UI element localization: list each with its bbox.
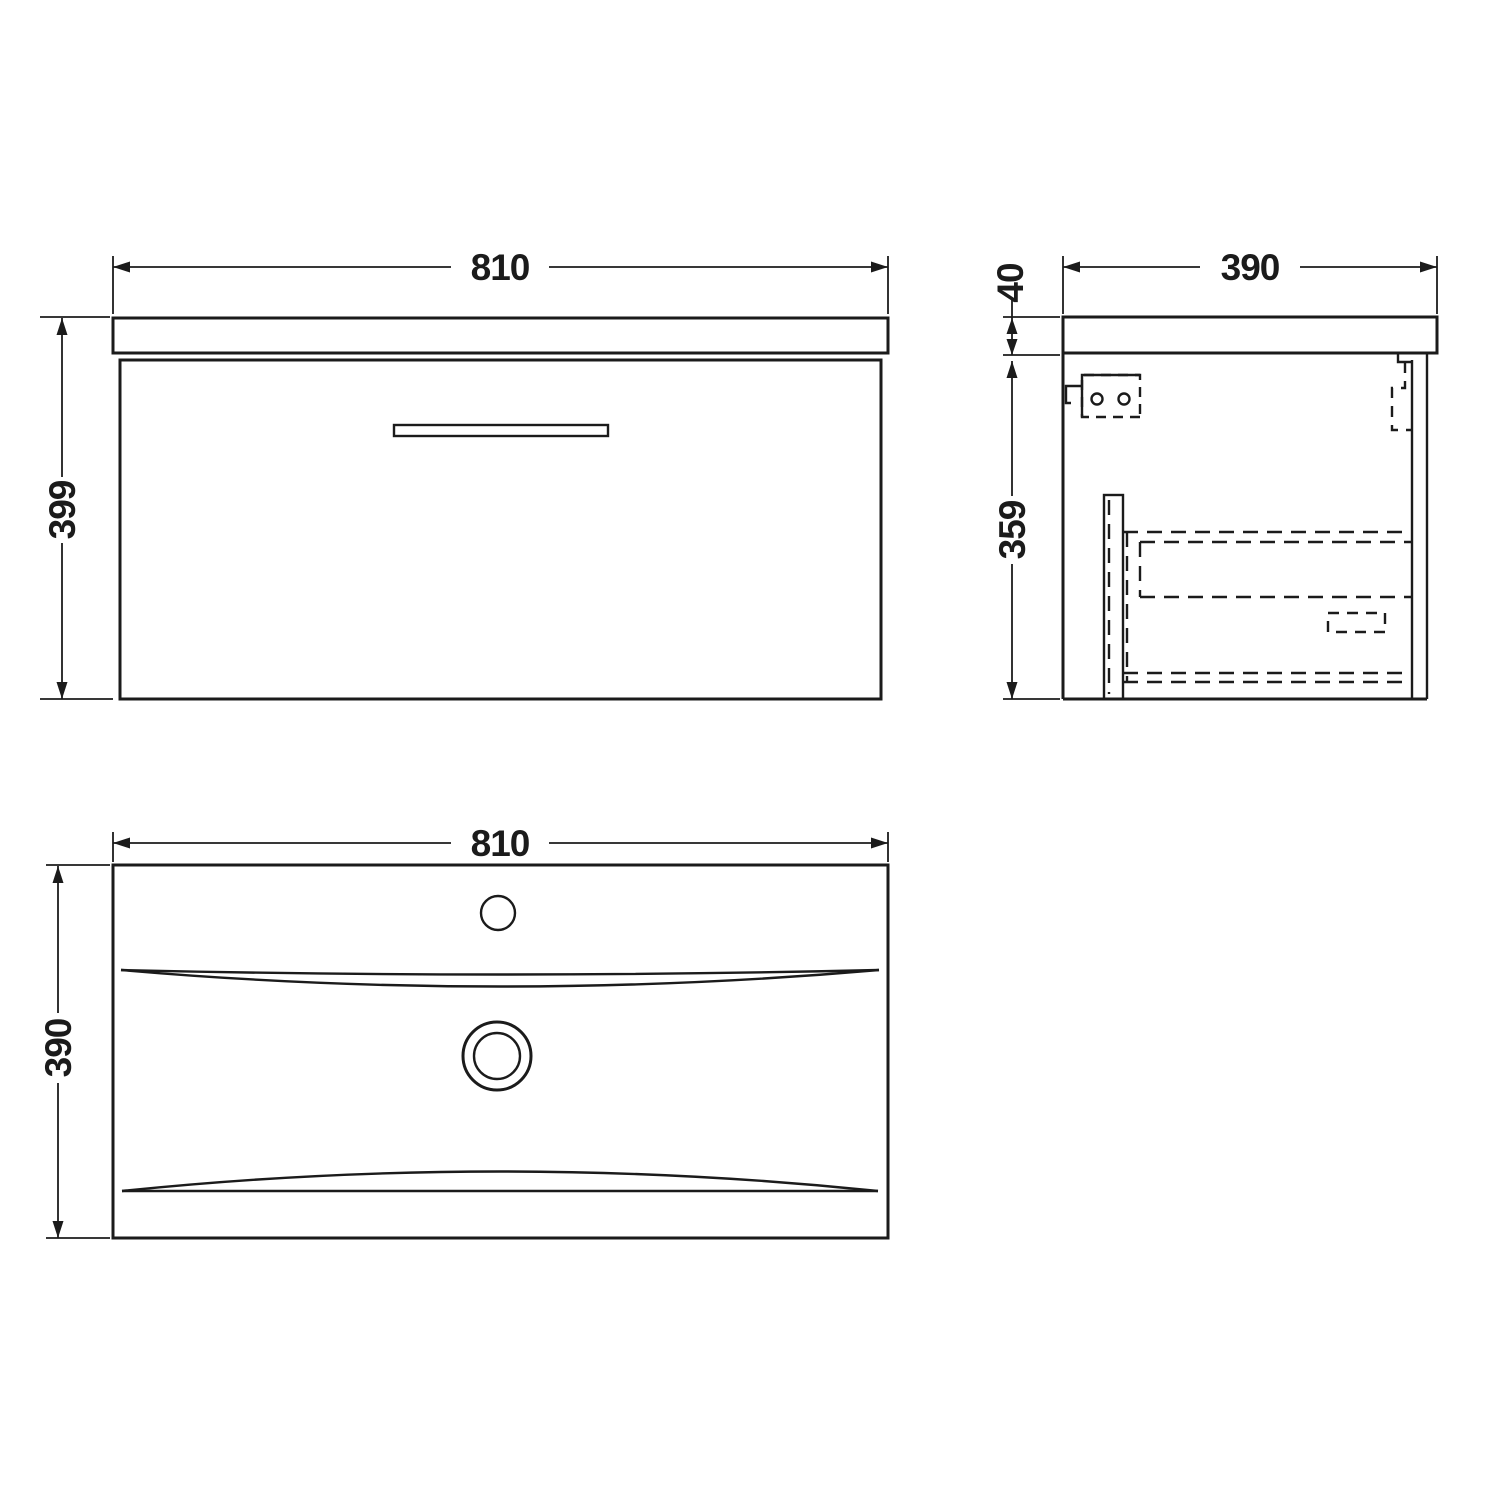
worktop-front: [113, 318, 888, 353]
bracket-screw-hole: [1092, 394, 1103, 405]
dimension-front-width: 810: [113, 247, 888, 314]
dimension-plan-depth: 390: [38, 865, 110, 1238]
vanity-technical-drawing: 810 399 390: [0, 0, 1500, 1500]
cabinet-front: [120, 360, 881, 699]
hanging-rail-hidden: [1392, 362, 1412, 430]
dimension-body-height: 359: [992, 361, 1060, 699]
dim-side-depth-label: 390: [1221, 247, 1280, 288]
drawer-front-section: [1104, 495, 1123, 699]
bracket-screw-hole: [1119, 394, 1130, 405]
dim-worktop-thickness-label: 40: [990, 263, 1031, 303]
drawer-handle: [394, 425, 608, 436]
dimension-plan-width: 810: [113, 823, 888, 864]
dim-front-width-label: 810: [471, 247, 530, 288]
side-view: 390 40 359: [990, 247, 1437, 699]
dim-front-height-label: 399: [42, 480, 83, 539]
bowl-back-arch: [122, 1172, 878, 1192]
dim-plan-width-label: 810: [471, 823, 530, 864]
plan-view: 810 390: [38, 823, 888, 1238]
dimension-side-depth: 390: [1063, 247, 1437, 314]
drawing-canvas: 810 399 390: [0, 0, 1500, 1500]
bowl-front-edge-top: [121, 970, 879, 975]
waste-hole-inner: [474, 1033, 520, 1079]
front-view: 810 399: [40, 247, 888, 699]
tap-hole: [481, 896, 515, 930]
wall-bracket: [1066, 375, 1140, 417]
worktop-side: [1063, 317, 1437, 353]
dimension-worktop-thickness: 40: [990, 263, 1060, 355]
dimension-front-height: 399: [40, 317, 113, 699]
drawer-box-hidden: [1123, 532, 1412, 682]
bracket-hook: [1066, 386, 1082, 403]
dim-body-height-label: 359: [992, 500, 1033, 559]
dim-plan-depth-label: 390: [38, 1018, 79, 1077]
drawer-runner-hidden: [1328, 613, 1385, 632]
